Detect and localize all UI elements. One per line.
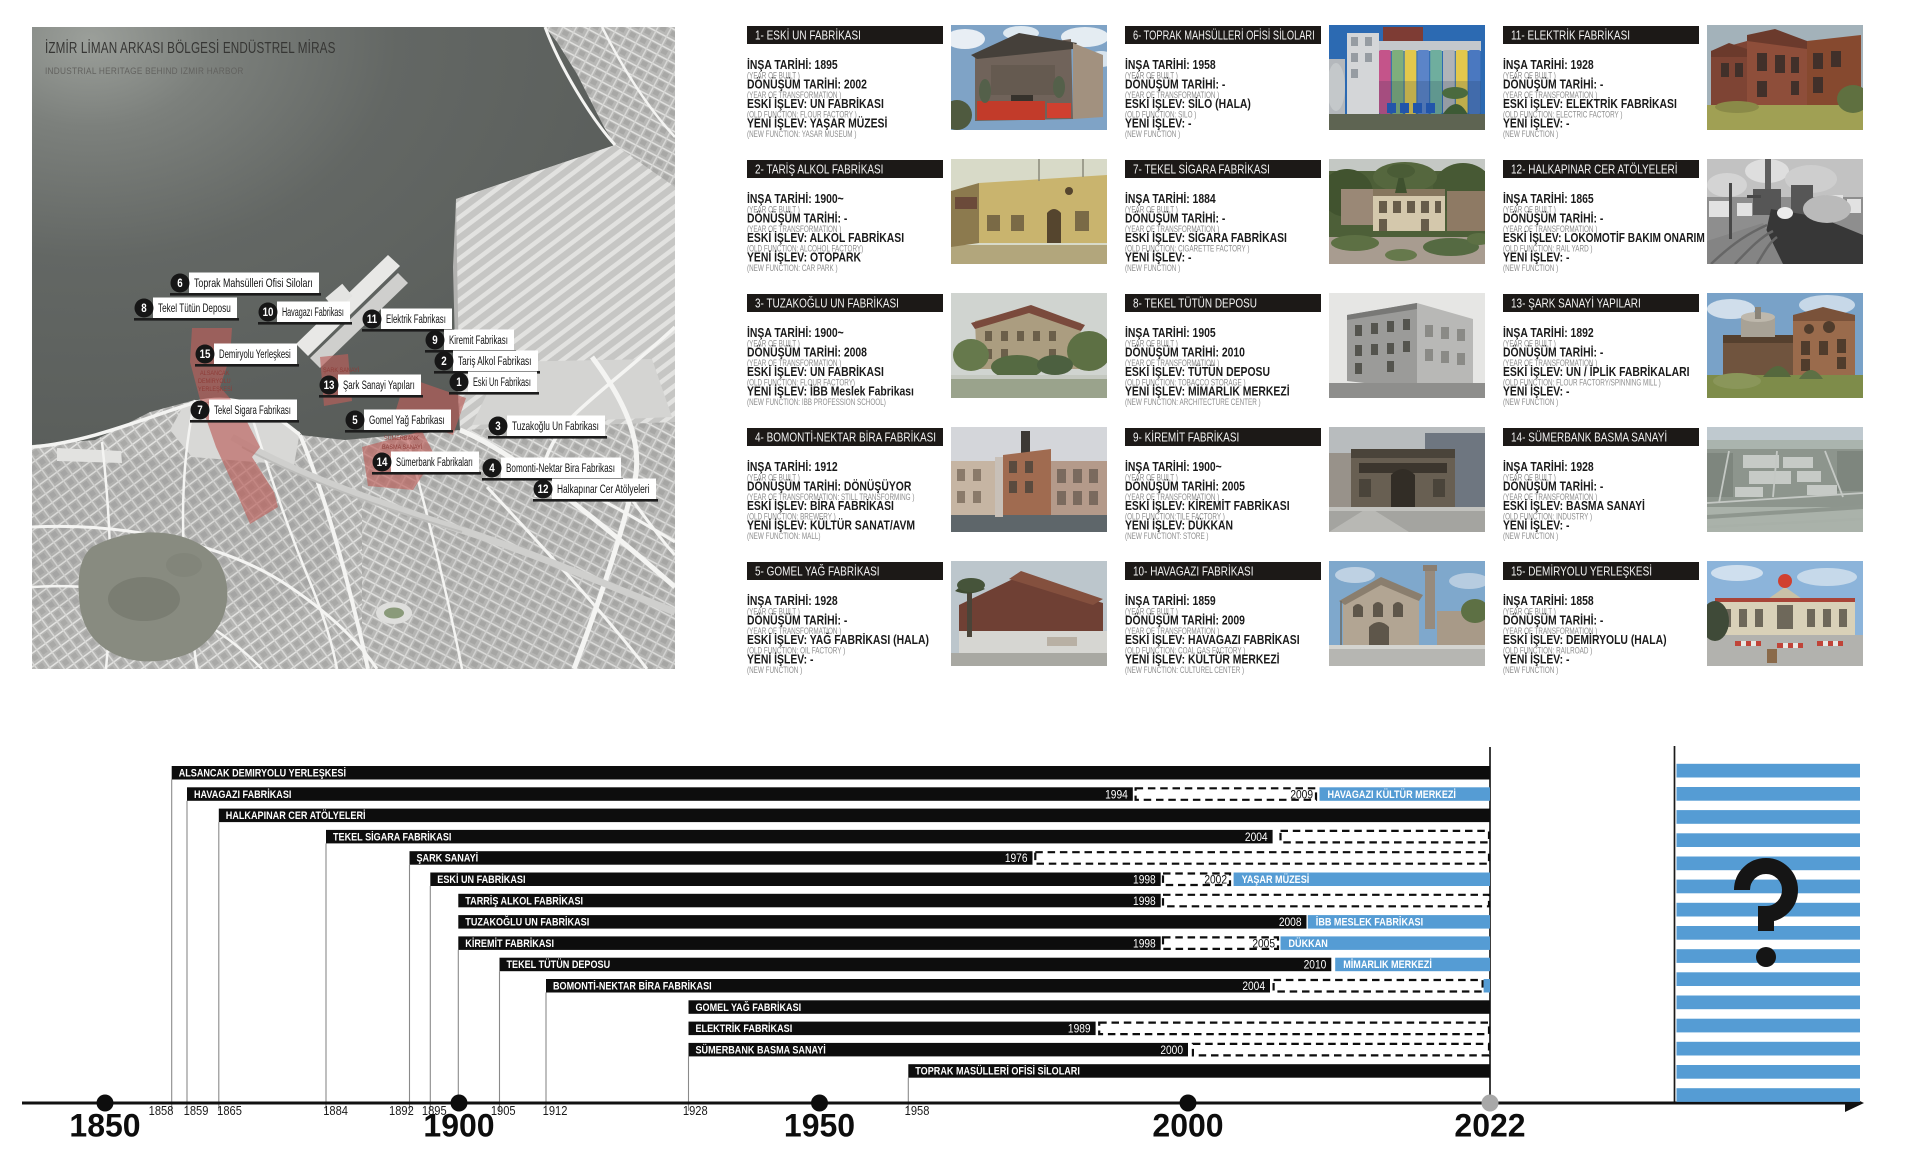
svg-text:2009: 2009 <box>1290 789 1313 802</box>
svg-text:Gomel Yağ Fabrikası: Gomel Yağ Fabrikası <box>369 415 445 428</box>
svg-text:1900: 1900 <box>423 1108 494 1144</box>
svg-text:15- DEMİRYOLU YERLEŞKESİ: 15- DEMİRYOLU YERLEŞKESİ <box>1511 564 1652 578</box>
svg-text:BOMONTİ-NEKTAR BİRA FABRİKASI: BOMONTİ-NEKTAR BİRA FABRİKASI <box>553 981 712 993</box>
svg-text:SÜMERBANK BASMA SANAYİ: SÜMERBANK BASMA SANAYİ <box>696 1045 827 1057</box>
svg-text:(NEW FUNCTION ): (NEW FUNCTION ) <box>1503 397 1559 407</box>
svg-text:2: 2 <box>441 355 446 368</box>
svg-text:11: 11 <box>367 313 377 326</box>
svg-text:TUZAKOĞLU UN FABRİKASI: TUZAKOĞLU UN FABRİKASI <box>465 916 589 929</box>
svg-text:1998: 1998 <box>1133 938 1156 951</box>
svg-text:Tekel Sigara Fabrikası: Tekel Sigara Fabrikası <box>214 405 291 418</box>
svg-text:(NEW FUNCTION: ARCHITECTURE CE: (NEW FUNCTION: ARCHITECTURE CENTER ) <box>1125 397 1261 407</box>
svg-text:13: 13 <box>324 379 335 392</box>
svg-text:1858: 1858 <box>149 1103 174 1118</box>
svg-text:14- SÜMERBANK BASMA SANAYİ: 14- SÜMERBANK BASMA SANAYİ <box>1511 430 1667 444</box>
svg-text:1850: 1850 <box>69 1108 140 1144</box>
svg-text:(NEW FUNCTION: CAR PARK ): (NEW FUNCTION: CAR PARK ) <box>747 263 838 273</box>
svg-text:TEKEL SİGARA FABRİKASI: TEKEL SİGARA FABRİKASI <box>333 832 452 844</box>
svg-text:KİREMİT FABRİKASI: KİREMİT FABRİKASI <box>465 938 554 950</box>
svg-text:8- TEKEL TÜTÜN DEPOSU: 8- TEKEL TÜTÜN DEPOSU <box>1133 297 1257 310</box>
svg-text:2000: 2000 <box>1160 1044 1183 1057</box>
svg-text:9: 9 <box>432 334 437 347</box>
svg-text:(NEW FUNCTION: YASAR MUSEUM ): (NEW FUNCTION: YASAR MUSEUM ) <box>747 129 857 139</box>
svg-text:DÜKKAN: DÜKKAN <box>1289 938 1328 950</box>
svg-text:2010: 2010 <box>1304 959 1327 972</box>
svg-text:15: 15 <box>200 348 211 361</box>
svg-text:Tuzakoğlu Un Fabrikası: Tuzakoğlu Un Fabrikası <box>512 421 599 434</box>
svg-text:3- TUZAKOĞLU UN FABRİKASI: 3- TUZAKOĞLU UN FABRİKASI <box>755 296 899 310</box>
svg-text:1958: 1958 <box>905 1103 930 1118</box>
svg-text:14: 14 <box>377 456 388 469</box>
svg-text:2000: 2000 <box>1152 1108 1223 1144</box>
svg-text:1998: 1998 <box>1133 895 1156 908</box>
svg-text:2022: 2022 <box>1454 1108 1525 1144</box>
svg-text:INDUSTRIAL HERITAGE BEHIND IZM: INDUSTRIAL HERITAGE BEHIND IZMIR HARBOR <box>45 65 244 76</box>
svg-text:1928: 1928 <box>683 1103 708 1118</box>
svg-text:Tekel Tütün Deposu: Tekel Tütün Deposu <box>158 303 231 316</box>
svg-text:10: 10 <box>263 306 274 319</box>
svg-text:HAVAGAZI KÜLTÜR MERKEZİ: HAVAGAZI KÜLTÜR MERKEZİ <box>1328 789 1457 801</box>
svg-text:Tariş Alkol Fabrikası: Tariş Alkol Fabrikası <box>458 356 531 369</box>
svg-text:12- HALKAPINAR CER ATÖLYELERİ: 12- HALKAPINAR CER ATÖLYELERİ <box>1511 162 1678 176</box>
svg-text:7- TEKEL SİGARA FABRİKASI: 7- TEKEL SİGARA FABRİKASI <box>1133 162 1270 176</box>
svg-text:(NEW FUNCTION ): (NEW FUNCTION ) <box>747 665 803 675</box>
svg-text:HAVAGAZI FABRİKASI: HAVAGAZI FABRİKASI <box>194 789 292 801</box>
svg-text:1994: 1994 <box>1105 789 1128 802</box>
svg-text:(NEW FUNCTION ): (NEW FUNCTION ) <box>1125 263 1181 273</box>
svg-text:9- KİREMİT FABRİKASI: 9- KİREMİT FABRİKASI <box>1133 430 1239 444</box>
svg-text:2004: 2004 <box>1245 831 1268 844</box>
svg-text:1865: 1865 <box>217 1103 242 1118</box>
svg-text:TEKEL TÜTÜN DEPOSU: TEKEL TÜTÜN DEPOSU <box>507 960 611 972</box>
svg-text:(NEW FUNCTION ): (NEW FUNCTION ) <box>1503 665 1559 675</box>
svg-text:SÜMERBANK: SÜMERBANK <box>384 435 419 443</box>
svg-text:13- ŞARK SANAYİ YAPILARI: 13- ŞARK SANAYİ YAPILARI <box>1511 296 1641 310</box>
svg-text:YERLEŞKESİ: YERLEŞKESİ <box>198 386 233 394</box>
svg-text:İZMİR LİMAN ARKASI BÖLGESİ END: İZMİR LİMAN ARKASI BÖLGESİ ENDÜSTREL MİR… <box>45 37 336 56</box>
svg-text:1950: 1950 <box>784 1108 855 1144</box>
svg-text:8: 8 <box>141 302 146 315</box>
svg-text:1859: 1859 <box>184 1103 209 1118</box>
svg-text:YAŞAR MÜZESİ: YAŞAR MÜZESİ <box>1242 874 1310 886</box>
svg-text:2008: 2008 <box>1279 917 1302 930</box>
svg-text:1998: 1998 <box>1133 874 1156 887</box>
svg-text:2002: 2002 <box>1204 874 1227 887</box>
svg-text:(NEW FUNCTION ): (NEW FUNCTION ) <box>1125 129 1181 139</box>
svg-text:ELEKTRİK FABRİKASI: ELEKTRİK FABRİKASI <box>696 1023 793 1035</box>
svg-text:12: 12 <box>538 483 549 496</box>
svg-text:(NEW FUNCTION: IBB PROFESSION: (NEW FUNCTION: IBB PROFESSION SCHOOL) <box>747 397 886 407</box>
svg-text:1989: 1989 <box>1068 1023 1091 1036</box>
svg-text:2005: 2005 <box>1252 938 1275 951</box>
svg-text:TOPRAK MASÜLLERİ OFİSİ SİLOLAR: TOPRAK MASÜLLERİ OFİSİ SİLOLARI <box>915 1066 1080 1078</box>
svg-text:1976: 1976 <box>1005 853 1028 866</box>
svg-text:Bomonti-Nektar Bira Fabrikası: Bomonti-Nektar Bira Fabrikası <box>506 463 615 476</box>
svg-text:ŞARK SANAYİ: ŞARK SANAYİ <box>323 367 360 375</box>
svg-text:BASMA SANAYİ: BASMA SANAYİ <box>382 444 423 452</box>
svg-text:Elektrik Fabrikası: Elektrik Fabrikası <box>386 314 446 327</box>
svg-text:10- HAVAGAZI FABRİKASI: 10- HAVAGAZI FABRİKASI <box>1133 564 1253 578</box>
svg-text:(NEW FUNCTION: CULTUREL CENTER: (NEW FUNCTION: CULTUREL CENTER ) <box>1125 665 1245 675</box>
svg-text:Halkapınar Cer Atölyeleri: Halkapınar Cer Atölyeleri <box>557 484 649 497</box>
svg-text:5- GOMEL YAĞ FABRİKASI: 5- GOMEL YAĞ FABRİKASI <box>755 564 880 578</box>
svg-text:Demiryolu Yerleşkesi: Demiryolu Yerleşkesi <box>219 349 291 362</box>
svg-text:(NEW FUNCTION ): (NEW FUNCTION ) <box>1503 263 1559 273</box>
svg-text:TARRİŞ ALKOL FABRİKASI: TARRİŞ ALKOL FABRİKASI <box>465 896 583 908</box>
svg-text:ŞARK SANAYİ: ŞARK SANAYİ <box>417 853 479 865</box>
svg-text:Toprak Mahsülleri Ofisi Silola: Toprak Mahsülleri Ofisi Siloları <box>194 277 313 291</box>
svg-text:Kiremit Fabrikası: Kiremit Fabrikası <box>449 335 508 348</box>
svg-text:Eski Un Fabrikası: Eski Un Fabrikası <box>473 377 531 390</box>
svg-text:5: 5 <box>352 414 357 427</box>
svg-text:3: 3 <box>495 420 500 433</box>
svg-text:1892: 1892 <box>389 1103 414 1118</box>
svg-text:1: 1 <box>456 376 461 389</box>
svg-text:4: 4 <box>489 462 494 475</box>
svg-text:2004: 2004 <box>1242 980 1265 993</box>
svg-text:2- TARİŞ ALKOL FABRİKASI: 2- TARİŞ ALKOL FABRİKASI <box>755 162 883 176</box>
svg-text:Havagazı Fabrikası: Havagazı Fabrikası <box>282 306 344 319</box>
svg-text:ALSANCAK: ALSANCAK <box>200 371 229 377</box>
svg-text:7: 7 <box>197 404 202 417</box>
svg-text:1- ESKİ UN FABRİKASI: 1- ESKİ UN FABRİKASI <box>755 28 861 42</box>
svg-text:İBB MESLEK FABRİKASI: İBB MESLEK FABRİKASI <box>1316 917 1424 929</box>
svg-text:HALKAPINAR CER ATÖLYELERİ: HALKAPINAR CER ATÖLYELERİ <box>226 810 366 822</box>
svg-text:6- TOPRAK MAHSÜLLERİ OFİSİ SİL: 6- TOPRAK MAHSÜLLERİ OFİSİ SİLOLARI <box>1133 28 1315 43</box>
svg-text:1884: 1884 <box>323 1103 348 1118</box>
svg-text:(NEW FUNCTION: MALL): (NEW FUNCTION: MALL) <box>747 531 821 541</box>
svg-text:Şark Sanayi Yapıları: Şark Sanayi Yapıları <box>343 380 415 393</box>
svg-text:ALSANCAK DEMIRYOLU YERLEŞKESİ: ALSANCAK DEMIRYOLU YERLEŞKESİ <box>179 768 346 780</box>
svg-text:ESKİ UN FABRİKASI: ESKİ UN FABRİKASI <box>437 874 525 886</box>
svg-text:(NEW FUNCTIONT: STORE ): (NEW FUNCTIONT: STORE ) <box>1125 531 1209 541</box>
svg-text:GOMEL YAĞ FABRİKASI: GOMEL YAĞ FABRİKASI <box>696 1001 802 1014</box>
svg-text:DEMİRYOLU: DEMİRYOLU <box>198 378 231 386</box>
svg-text:(NEW FUNCTION ): (NEW FUNCTION ) <box>1503 129 1559 139</box>
svg-text:4- BOMONTİ-NEKTAR BİRA FABRİKA: 4- BOMONTİ-NEKTAR BİRA FABRİKASI <box>755 430 936 444</box>
svg-text:MİMARLIK MERKEZİ: MİMARLIK MERKEZİ <box>1343 960 1432 972</box>
svg-text:11- ELEKTRİK FABRİKASI: 11- ELEKTRİK FABRİKASI <box>1511 28 1630 42</box>
svg-text:(NEW FUNCTION ): (NEW FUNCTION ) <box>1503 531 1559 541</box>
svg-text:6: 6 <box>177 277 182 290</box>
svg-text:1912: 1912 <box>543 1103 568 1118</box>
svg-text:Sümerbank Fabrikaları: Sümerbank Fabrikaları <box>396 457 473 470</box>
